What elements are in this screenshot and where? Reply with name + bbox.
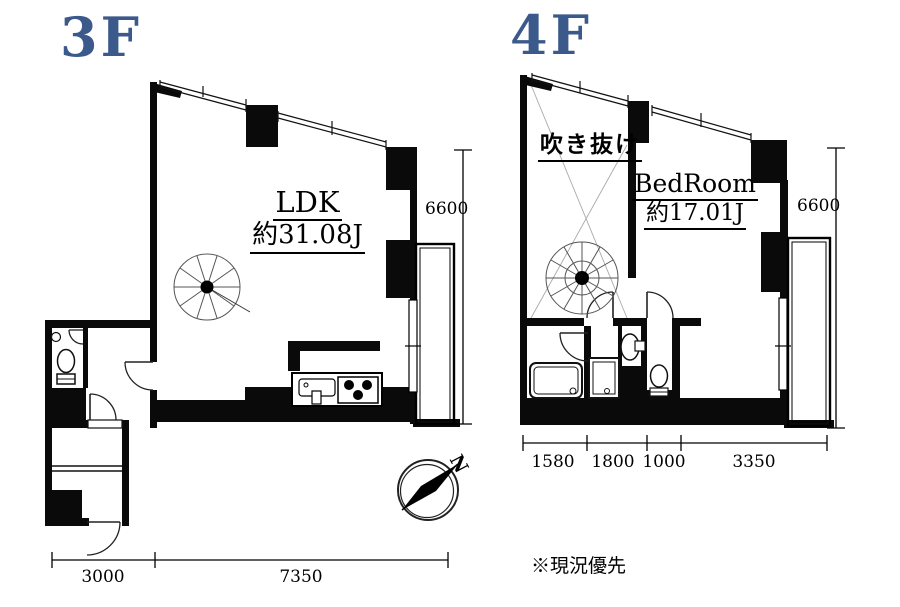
dim-3f-bottom-2: 7350 xyxy=(271,567,331,587)
void-label: 吹き抜け xyxy=(538,125,642,162)
room-area-bedroom: 約17.01J xyxy=(644,201,746,230)
floor-4f-title: 4F xyxy=(510,8,592,62)
dim-4f-bottom-2: 1800 xyxy=(585,452,641,472)
dim-4f-bottom-4: 3350 xyxy=(726,452,782,472)
note-line-1: ※現況優先 xyxy=(531,553,900,579)
room-name-ldk: LDK xyxy=(273,186,341,221)
kitchen-counter xyxy=(288,341,380,371)
floorplan-page: 3F 4F LDK 約31.08J BedRoom 約17.01J 吹き抜け 6… xyxy=(0,0,900,607)
room-name-bedroom: BedRoom xyxy=(632,170,758,201)
floorplan-3f-drawing xyxy=(45,80,472,568)
dim-3f-bottom-1: 3000 xyxy=(73,567,133,587)
dim-3f-right: 6600 xyxy=(425,199,465,219)
dim-4f-right: 6600 xyxy=(797,196,837,216)
room-area-ldk: 約31.08J xyxy=(250,221,365,253)
bathroom-4f xyxy=(530,334,668,398)
doors-4f xyxy=(560,292,673,361)
floor-3f-title: 3F xyxy=(60,10,142,64)
room-label-bedroom: BedRoom 約17.01J xyxy=(625,170,765,230)
notes-block: ※現況優先 ※寸法は壁芯になります。 必要の場合は現地採寸を行ってください。 xyxy=(531,501,900,607)
spiral-stair-4f xyxy=(546,242,618,314)
dim-4f-bottom-3: 1000 xyxy=(636,452,692,472)
toilet-3f xyxy=(52,333,76,385)
spiral-stair-3f xyxy=(174,254,250,320)
kitchen-3f xyxy=(292,373,382,406)
walls-3f xyxy=(45,82,460,526)
dim-4f-bottom-1: 1580 xyxy=(525,452,581,472)
room-label-ldk: LDK 約31.08J xyxy=(235,186,380,254)
